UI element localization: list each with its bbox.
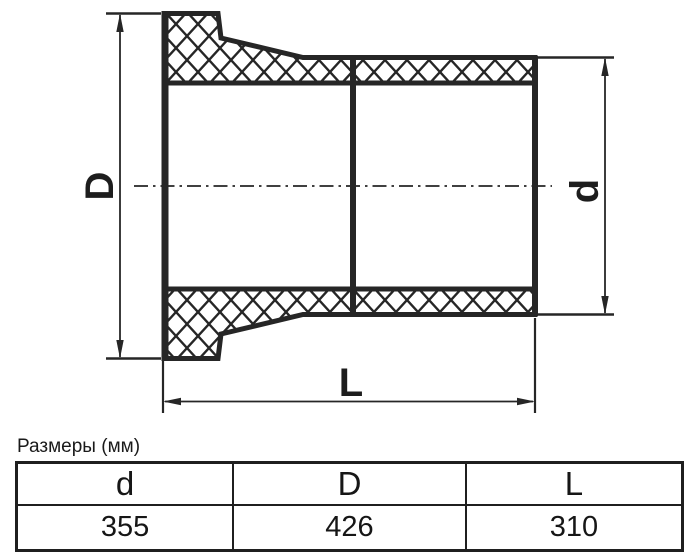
- technical-drawing: D d L: [0, 0, 700, 430]
- dimension-L-label: L: [339, 361, 363, 405]
- arrowhead-left-icon: [163, 398, 181, 405]
- dimension-table: d D L 355 426 310: [15, 461, 684, 552]
- table-header-L: L: [466, 463, 683, 506]
- table-header-d: d: [17, 463, 234, 506]
- arrowhead-up-icon: [601, 58, 608, 77]
- arrowhead-right-icon: [517, 398, 535, 405]
- dimension-D-label: D: [78, 172, 122, 201]
- arrowhead-down-icon: [601, 296, 608, 315]
- arrowhead-down-icon: [116, 340, 123, 359]
- table-caption: Размеры (мм): [17, 435, 140, 459]
- dimension-D: D: [78, 14, 161, 359]
- page: D d L Размеры (мм) d D L: [0, 0, 700, 560]
- dimension-d-label: d: [563, 179, 607, 203]
- arrowhead-up-icon: [116, 14, 123, 33]
- table-value-d: 355: [17, 505, 234, 551]
- table-value-D: 426: [233, 505, 466, 551]
- table-value-L: 310: [466, 505, 683, 551]
- dimension-d: d: [538, 58, 614, 315]
- table-header-D: D: [233, 463, 466, 506]
- table-value-row: 355 426 310: [17, 505, 683, 551]
- table-header-row: d D L: [17, 463, 683, 506]
